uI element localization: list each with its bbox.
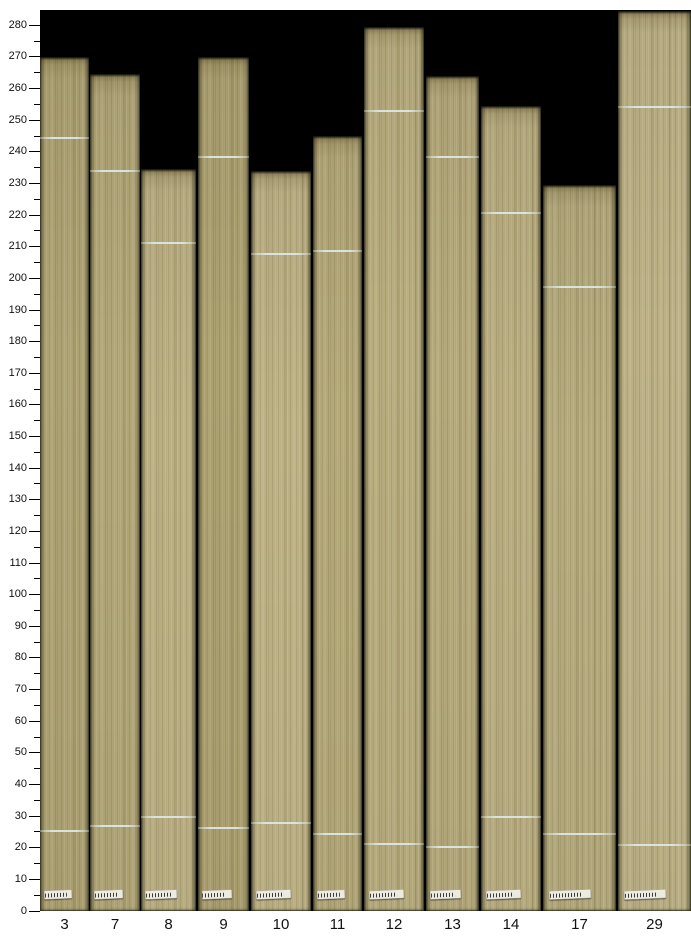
y-axis-minor-tick [34,515,40,516]
barcode-sticker [256,889,291,900]
barcode-sticker [44,889,73,899]
y-axis-minor-tick [34,768,40,769]
y-axis-minor-tick [34,72,40,73]
barcode-sticker [486,889,521,900]
y-axis-tick-label: 90 [0,620,27,633]
y-axis-tick-label: 210 [0,240,27,253]
barcode-sticker [94,889,123,899]
y-axis-major-tick [29,911,40,912]
y-axis-major-tick [29,784,40,785]
y-axis-minor-tick [34,294,40,295]
y-axis-tick-label: 190 [0,304,27,317]
plot-area [40,10,691,911]
y-axis-tick-label: 130 [0,493,27,506]
y-axis-tick-label: 200 [0,272,27,285]
y-axis-minor-tick [34,578,40,579]
chalk-mark-upper [141,242,196,244]
barcode-sticker [202,889,232,899]
y-axis-tick-label: 60 [0,715,27,728]
chalk-mark-lower [198,827,249,829]
y-axis-major-tick [29,88,40,89]
y-axis-major-tick [29,752,40,753]
y-axis-tick-label: 240 [0,145,27,158]
chalk-mark-upper [313,250,362,252]
y-axis-major-tick [29,626,40,627]
y-axis-tick-label: 170 [0,367,27,380]
y-axis-major-tick [29,531,40,532]
board-14 [481,106,541,911]
y-axis-major-tick [29,25,40,26]
board-8 [141,169,196,911]
chalk-mark-lower [618,844,691,846]
chalk-mark-upper [481,212,541,214]
y-axis-major-tick [29,468,40,469]
board-7 [90,74,140,911]
y-axis-tick-label: 30 [0,810,27,823]
x-axis-tick-label: 13 [431,916,475,933]
board-11 [313,136,362,911]
y-axis-tick-label: 20 [0,841,27,854]
y-axis-minor-tick [34,642,40,643]
y-axis-minor-tick [34,357,40,358]
y-axis-minor-tick [34,389,40,390]
chalk-mark-upper [198,156,249,158]
y-axis-minor-tick [34,610,40,611]
y-axis-major-tick [29,310,40,311]
y-axis-major-tick [29,373,40,374]
chalk-mark-upper [618,106,691,108]
y-axis-tick-label: 110 [0,557,27,570]
y-axis-tick-label: 70 [0,683,27,696]
y-axis-tick-label: 260 [0,82,27,95]
chalk-mark-lower [251,822,311,824]
y-axis-minor-tick [34,705,40,706]
chalk-mark-lower [40,830,89,832]
x-axis-tick-label: 7 [93,916,137,933]
y-axis-minor-tick [34,737,40,738]
barcode-sticker [549,889,592,900]
barcode-sticker [624,889,667,900]
chalk-mark-upper [543,286,616,288]
y-axis-tick-label: 40 [0,778,27,791]
y-axis-major-tick [29,499,40,500]
y-axis-major-tick [29,689,40,690]
y-axis-tick-label: 80 [0,651,27,664]
y-axis-major-tick [29,215,40,216]
x-axis-tick-label: 8 [147,916,191,933]
y-axis-tick-label: 50 [0,746,27,759]
chalk-mark-lower [481,816,541,818]
y-axis-tick-label: 10 [0,873,27,886]
y-axis-major-tick [29,56,40,57]
chalk-mark-lower [141,816,196,818]
chalk-mark-lower [313,833,362,835]
chalk-mark-lower [543,833,616,835]
y-axis-major-tick [29,404,40,405]
y-axis-minor-tick [34,547,40,548]
chalk-mark-lower [426,846,479,848]
chalk-mark-upper [426,156,479,158]
chalk-mark-upper [40,137,89,139]
y-axis-tick-label: 230 [0,177,27,190]
chalk-mark-lower [364,843,424,845]
y-axis-major-tick [29,341,40,342]
y-axis-major-tick [29,594,40,595]
y-axis-tick-label: 270 [0,50,27,63]
y-axis-major-tick [29,120,40,121]
barcode-sticker [317,889,346,899]
chalk-mark-lower [90,825,140,827]
x-axis-tick-label: 9 [202,916,246,933]
y-axis-tick-label: 180 [0,335,27,348]
y-axis-major-tick [29,278,40,279]
board-9 [198,57,249,911]
y-axis-major-tick [29,246,40,247]
y-axis-tick-label: 100 [0,588,27,601]
barcode-sticker [145,889,177,899]
chalk-mark-upper [90,170,140,172]
y-axis-major-tick [29,879,40,880]
barcode-sticker [369,889,404,900]
board-3 [40,57,89,911]
y-axis-minor-tick [34,230,40,231]
y-axis-minor-tick [34,167,40,168]
board-17 [543,185,616,911]
x-axis-tick-label: 12 [372,916,416,933]
y-axis-tick-label: 140 [0,462,27,475]
y-axis-major-tick [29,721,40,722]
y-axis-minor-tick [34,420,40,421]
y-axis-minor-tick [34,136,40,137]
y-axis-minor-tick [34,104,40,105]
board-13 [426,76,479,911]
y-axis-major-tick [29,816,40,817]
y-axis-tick-label: 280 [0,19,27,32]
x-axis-tick-label: 14 [489,916,533,933]
y-axis-minor-tick [34,262,40,263]
y-axis-tick-label: 120 [0,525,27,538]
y-axis-tick-label: 250 [0,114,27,127]
chalk-mark-upper [251,253,311,255]
x-axis-tick-label: 29 [633,916,677,933]
y-axis-major-tick [29,657,40,658]
y-axis-minor-tick [34,199,40,200]
y-axis-major-tick [29,436,40,437]
y-axis-minor-tick [34,325,40,326]
y-axis-tick-label: 220 [0,209,27,222]
y-axis-major-tick [29,847,40,848]
y-axis-major-tick [29,151,40,152]
y-axis-major-tick [29,183,40,184]
board-29 [618,11,691,911]
y-axis-major-tick [29,563,40,564]
y-axis-minor-tick [34,41,40,42]
y-axis-tick-label: 160 [0,398,27,411]
x-axis-tick-label: 10 [259,916,303,933]
x-axis-tick-label: 17 [558,916,602,933]
y-axis-minor-tick [34,673,40,674]
chalk-mark-upper [364,110,424,112]
x-axis-tick-label: 11 [316,916,360,933]
y-axis-minor-tick [34,800,40,801]
board-12 [364,27,424,911]
y-axis-tick-label: 150 [0,430,27,443]
barcode-sticker [430,889,461,899]
y-axis-minor-tick [34,831,40,832]
wood-board-figure: 0102030405060708090100110120130140150160… [0,0,691,950]
y-axis-minor-tick [34,895,40,896]
y-axis-minor-tick [34,452,40,453]
x-axis-tick-label: 3 [43,916,87,933]
y-axis-minor-tick [34,483,40,484]
y-axis-minor-tick [34,863,40,864]
y-axis-tick-label: 0 [0,905,27,918]
board-10 [251,171,311,911]
